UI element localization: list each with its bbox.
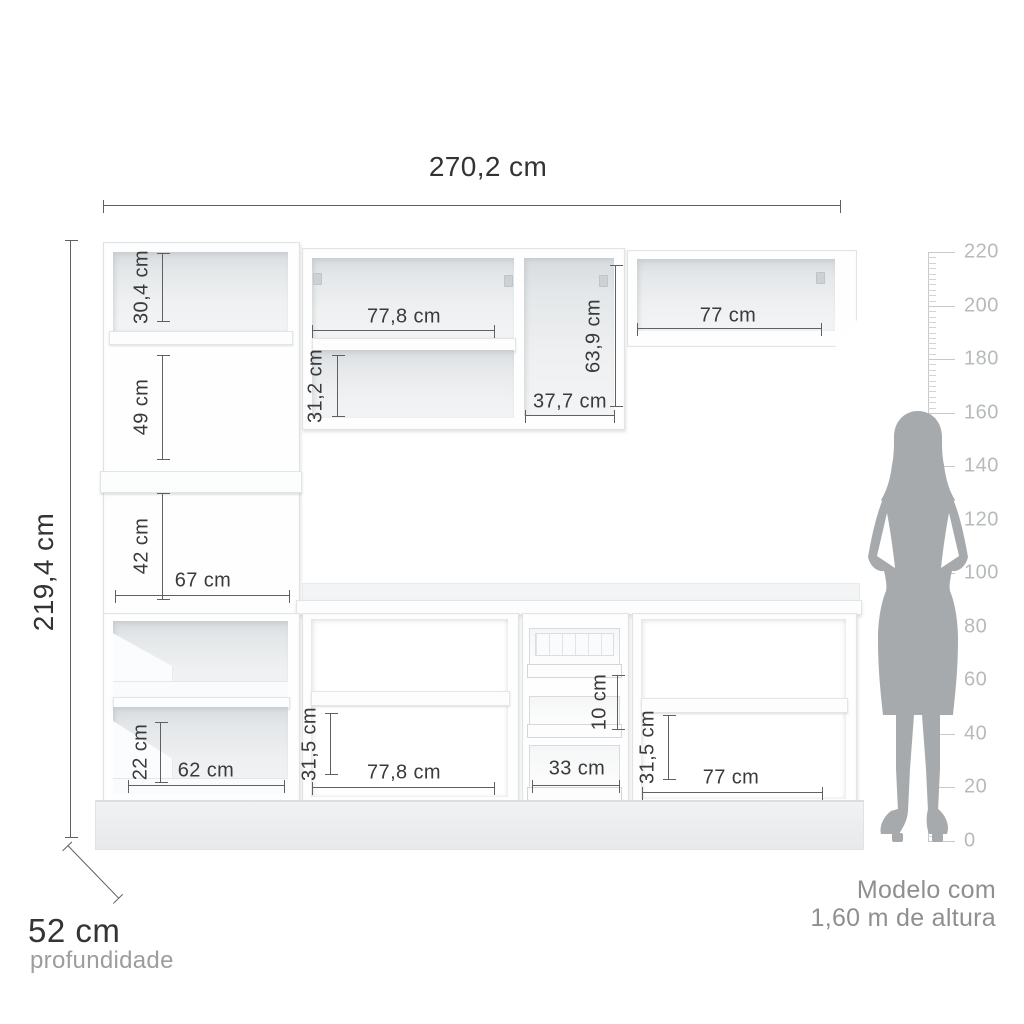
ruler-minor-tick — [928, 327, 936, 328]
dim-line-tower-low — [162, 493, 163, 600]
dim-line-depth — [67, 845, 119, 899]
dim-line-tower-mid — [162, 355, 163, 460]
ruler-label: 200 — [964, 295, 999, 318]
wall-center-lower-compartment — [312, 350, 514, 418]
silhouette-left-heel — [892, 833, 903, 842]
drawer-bottom — [113, 681, 288, 697]
ruler-minor-tick — [928, 257, 936, 258]
base-left-top-drawer — [113, 621, 288, 697]
ruler-minor-tick — [928, 284, 936, 285]
hinge-icon — [313, 273, 322, 285]
dim-line-wall-center-shelf — [337, 355, 338, 417]
dim-line-base-right-shelf — [668, 715, 669, 780]
dim-label-depth: 52 cm — [28, 912, 120, 950]
dim-line-total-width — [103, 205, 841, 206]
silhouette-body — [868, 461, 968, 715]
silhouette-left-leg — [896, 715, 914, 811]
dim-line-base-left-drawer — [160, 722, 161, 783]
ruler-tick — [928, 359, 955, 360]
dim-line-drawer-gap — [617, 675, 618, 730]
dim-line-tower-top — [162, 253, 163, 322]
model-note-line2: 1,60 m de altura — [700, 904, 996, 932]
dim-label-tower-top: 30,4 cm — [131, 250, 154, 324]
ruler-minor-tick — [928, 397, 936, 398]
wall-cabinet-right — [627, 250, 857, 347]
ruler-minor-tick — [928, 348, 936, 349]
dim-label-tower-mid: 49 cm — [131, 379, 154, 435]
ruler-minor-tick — [928, 370, 936, 371]
ruler-label: 180 — [964, 348, 999, 371]
dim-label-base-right-shelf: 31,5 cm — [637, 710, 660, 784]
ruler-minor-tick — [928, 381, 936, 382]
base-right-shelf — [641, 698, 848, 713]
dim-label-wall-center-shelf: 31,2 cm — [305, 349, 328, 423]
cutlery-tray — [535, 633, 614, 656]
silhouette-right-leg — [922, 715, 940, 811]
plinth — [95, 800, 864, 850]
dim-label-wall-tall-height: 63,9 cm — [583, 299, 606, 373]
tall-cabinet-mid-panel — [100, 471, 302, 493]
ruler-minor-tick — [928, 274, 936, 275]
dim-label-base-center-width: 77,8 cm — [367, 762, 441, 785]
dim-label-tower-width: 67 cm — [175, 570, 231, 593]
tall-cabinet-shelf — [109, 331, 293, 345]
woman-silhouette — [852, 409, 994, 847]
silhouette-left-foot — [880, 809, 908, 834]
dim-line-tower-width — [115, 595, 290, 596]
dim-caption-depth: profundidade — [30, 947, 174, 975]
dim-line-wall-right-width — [637, 328, 822, 329]
ruler-minor-tick — [928, 402, 936, 403]
ruler-minor-tick — [928, 333, 936, 334]
ruler-minor-tick — [928, 338, 936, 339]
dim-line-base-center-shelf — [330, 713, 331, 775]
model-height-note: Modelo com 1,60 m de altura — [700, 876, 996, 932]
base-center-shelf — [311, 691, 510, 706]
ruler-minor-tick — [928, 263, 936, 264]
silhouette-right-foot — [927, 809, 948, 834]
dim-label-wall-tall-width: 37,7 cm — [533, 391, 607, 414]
ruler-minor-tick — [928, 322, 936, 323]
ruler-minor-tick — [928, 391, 936, 392]
dim-label-base-center-shelf: 31,5 cm — [299, 707, 322, 781]
ruler-minor-tick — [928, 375, 936, 376]
dim-line-base-left-width — [128, 785, 285, 786]
dim-line-wall-tall-width — [525, 415, 615, 416]
dim-label-wall-center-width: 77,8 cm — [367, 306, 441, 329]
silhouette-right-heel — [932, 833, 943, 842]
dim-label-wall-right-width: 77 cm — [700, 305, 756, 328]
ruler-minor-tick — [928, 311, 936, 312]
dim-label-drawer-width: 33 cm — [549, 758, 605, 781]
dim-line-wall-tall-height — [615, 265, 616, 407]
dim-label-total-height: 219,4 cm — [28, 513, 60, 631]
ruler-minor-tick — [928, 290, 936, 291]
dim-label-drawer-gap: 10 cm — [589, 674, 612, 730]
ruler-tick — [928, 306, 955, 307]
dim-label-base-left-drawer: 22 cm — [130, 724, 153, 780]
ruler-minor-tick — [928, 268, 936, 269]
hinge-icon — [599, 275, 608, 287]
dim-line-base-center-width — [312, 787, 495, 788]
ruler-minor-tick — [928, 386, 936, 387]
ruler-tick — [928, 252, 955, 253]
ruler-minor-tick — [928, 354, 936, 355]
drawer-front — [527, 787, 622, 801]
dim-line-base-right-width — [642, 792, 823, 793]
dim-label-base-left-width: 62 cm — [178, 760, 234, 783]
hinge-icon — [504, 275, 513, 287]
dim-label-base-right-width: 77 cm — [703, 767, 759, 790]
dim-label-total-width: 270,2 cm — [429, 151, 547, 183]
dim-label-tower-low: 42 cm — [131, 518, 154, 574]
ruler-minor-tick — [928, 317, 936, 318]
ruler-minor-tick — [928, 364, 936, 365]
ruler-minor-tick — [928, 295, 936, 296]
dim-line-wall-center-width — [312, 330, 495, 331]
ruler-minor-tick — [928, 343, 936, 344]
ruler-minor-tick — [928, 301, 936, 302]
drawer-top — [529, 628, 620, 676]
dim-line-total-height — [70, 240, 71, 838]
model-note-line1: Modelo com — [700, 876, 996, 904]
ruler-minor-tick — [928, 279, 936, 280]
kitchen-cabinet-dimension-diagram: 270,2 cm 219,4 cm 52 cm profundidade 30,… — [0, 0, 1024, 1024]
dim-line-drawer-width — [532, 785, 620, 786]
hinge-icon — [816, 272, 825, 284]
ruler-label: 220 — [964, 241, 999, 264]
